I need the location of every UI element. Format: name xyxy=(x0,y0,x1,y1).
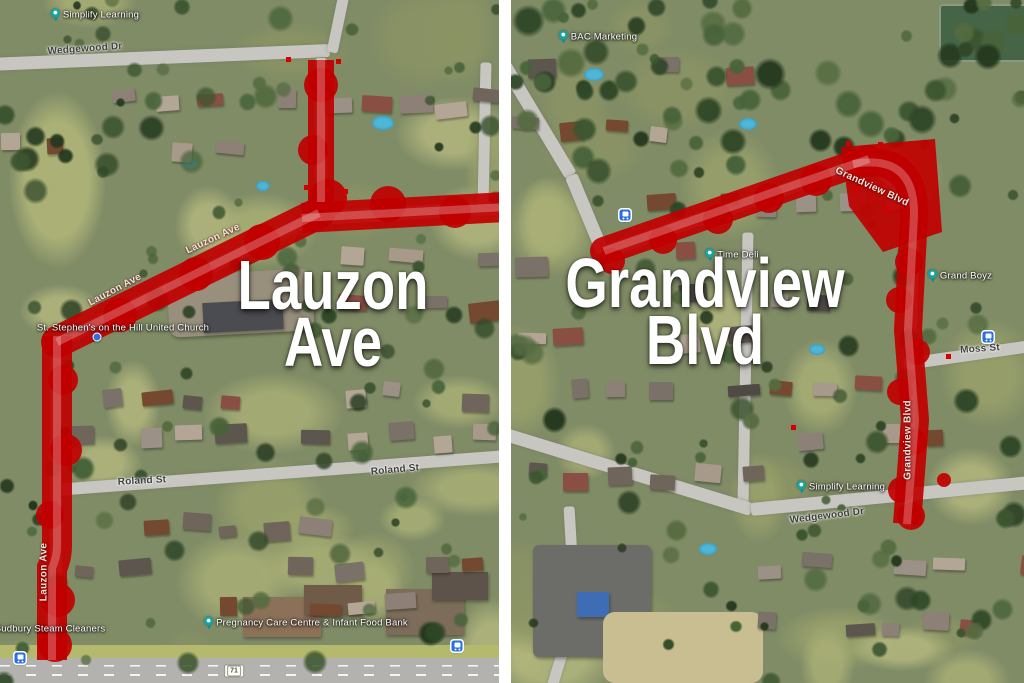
label-text: Simplify Learning xyxy=(63,10,139,21)
bus-glyph xyxy=(983,332,994,343)
label-text: Grandview Blvd xyxy=(834,165,911,209)
street-label-on-route: Lauzon Ave xyxy=(39,543,50,601)
map-collage: Simplify LearningWedgewood DrLauzon AveL… xyxy=(0,0,1024,683)
label-text: 71 xyxy=(227,666,241,677)
street-name-overlay-lauzon: Lauzon Ave xyxy=(211,257,456,371)
road-name-label: Moss St xyxy=(960,342,1000,356)
satellite-map-left: Simplify LearningWedgewood DrLauzon AveL… xyxy=(0,0,499,683)
place-pin-icon[interactable] xyxy=(797,481,806,494)
place-pin-icon[interactable] xyxy=(928,270,937,283)
bus-stop-icon[interactable] xyxy=(15,653,26,664)
label-text: Roland St xyxy=(370,462,419,477)
poi-label[interactable]: Sudbury Steam Cleaners xyxy=(0,624,105,635)
route-shield: 71 xyxy=(224,665,244,678)
label-text: Lauzon Ave xyxy=(87,271,144,308)
street-label-on-route: Grandview Blvd xyxy=(903,400,914,480)
street-name-overlay-grandview: Grandview Blvd xyxy=(526,255,884,369)
bus-glyph xyxy=(620,210,631,221)
bus-stop-icon[interactable] xyxy=(620,210,631,221)
street-label-on-route: Grandview Blvd xyxy=(834,165,911,209)
poi-label[interactable]: BAC Marketing xyxy=(559,31,637,44)
label-text: Roland St xyxy=(118,474,167,488)
place-pin-icon[interactable] xyxy=(559,31,568,44)
poi-label[interactable]: Simplify Learning xyxy=(797,481,885,494)
overlay-line-2: Ave xyxy=(237,314,428,371)
bus-glyph xyxy=(15,653,26,664)
label-text: Sudbury Steam Cleaners xyxy=(0,624,105,635)
place-pin-icon[interactable] xyxy=(51,9,60,22)
map-marker-dot[interactable] xyxy=(93,333,102,342)
road-name-label: Wedgewood Dr xyxy=(47,41,123,57)
label-text: Grandview Blvd xyxy=(903,400,914,480)
bus-stop-icon[interactable] xyxy=(983,332,994,343)
label-text: Grand Boyz xyxy=(940,271,992,282)
label-text: Lauzon Ave xyxy=(184,222,242,257)
satellite-map-right: BAC MarketingGrandview BlvdTime DeliGran… xyxy=(511,0,1024,683)
blue-marker-glyph xyxy=(93,333,102,342)
road-name-label: Wedgewood Dr xyxy=(789,506,865,526)
place-pin-icon[interactable] xyxy=(204,617,213,630)
street-label-on-route: Lauzon Ave xyxy=(184,222,242,257)
label-text: St. Stephen's on the Hill United Church xyxy=(37,323,209,334)
label-text: BAC Marketing xyxy=(571,32,637,43)
label-text: Wedgewood Dr xyxy=(789,506,865,526)
label-text: Pregnancy Care Centre & Infant Food Bank xyxy=(216,618,408,629)
label-text: Lauzon Ave xyxy=(39,543,50,601)
poi-label[interactable]: Pregnancy Care Centre & Infant Food Bank xyxy=(204,617,408,630)
street-label-on-route: Lauzon Ave xyxy=(87,271,144,308)
road-name-label: Roland St xyxy=(118,474,167,488)
bus-stop-icon[interactable] xyxy=(452,641,463,652)
poi-label[interactable]: Simplify Learning xyxy=(51,9,139,22)
poi-label[interactable]: St. Stephen's on the Hill United Church xyxy=(37,323,209,334)
road-name-label: Roland St xyxy=(370,462,419,477)
overlay-line-2: Blvd xyxy=(565,312,844,369)
bus-glyph xyxy=(452,641,463,652)
poi-label[interactable]: Grand Boyz xyxy=(928,270,992,283)
label-text: Wedgewood Dr xyxy=(47,41,123,57)
label-text: Simplify Learning xyxy=(809,482,885,493)
label-text: Moss St xyxy=(960,342,1000,356)
